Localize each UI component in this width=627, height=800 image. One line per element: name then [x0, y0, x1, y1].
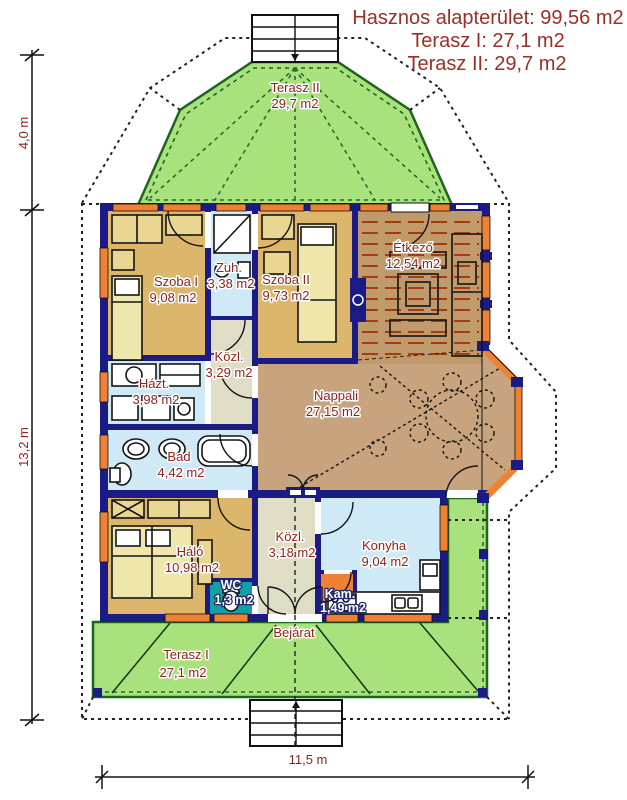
etkezo-area: 12,54 m2: [386, 256, 440, 271]
kozl-felso-area: 3,29 m2: [206, 365, 253, 380]
header-line-1: Hasznos alapterület: 99,56 m2: [352, 7, 623, 29]
szoba2-area: 9,73 m2: [263, 288, 310, 303]
terasz2-area: 29,7 m2: [272, 96, 319, 111]
wc-name: WC: [221, 578, 242, 592]
kozl-also-area: 3,18 m2: [269, 545, 316, 560]
wc-area: 1,3 m2: [215, 593, 254, 607]
header-title: Hasznos alapterület: 99,56 m2 Terasz I: …: [352, 7, 623, 75]
floor-plan-page: Terasz II 29,7 m2 Szoba I 9,08 m2 Zuh. 3…: [0, 0, 627, 800]
etkezo-name: Étkező: [393, 240, 433, 255]
szoba1-area: 9,08 m2: [150, 290, 197, 305]
dim-bottom: 11,5 m: [289, 752, 328, 767]
dim-left-lower: 13,2 m: [16, 427, 31, 467]
terasz2-name: Terasz II: [270, 80, 319, 95]
bejarat-label: Bejárat: [273, 625, 315, 640]
header-line-3: Terasz II: 29,7 m2: [408, 53, 567, 75]
floor-nappali: [258, 364, 482, 490]
szoba1-name: Szoba I: [154, 274, 198, 289]
konyha-area: 9,04 m2: [362, 554, 409, 569]
hazt-name: Házt.: [139, 376, 169, 391]
stairs-bottom: [250, 700, 342, 746]
zuh-name: Zuh.: [216, 260, 242, 275]
kam-name: Kam.: [325, 587, 356, 601]
halo-area: 10,98 m2: [165, 560, 219, 575]
konyha-name: Konyha: [362, 538, 407, 553]
nappali-name: Nappali: [314, 388, 358, 403]
stairs-top: [252, 15, 338, 62]
header-line-2: Terasz I: 27,1 m2: [411, 30, 564, 52]
kam-area: 1,49 m2: [320, 601, 366, 615]
halo-name: Háló: [177, 544, 204, 559]
zuh-area: 3,38 m2: [208, 276, 255, 291]
kozl-also-name: Közl.: [276, 529, 305, 544]
bad-name: Bad: [167, 449, 190, 464]
dim-left-upper: 4,0 m: [16, 117, 31, 150]
terasz1-name: Terasz I: [163, 647, 209, 662]
floor-plan-drawing: Terasz II 29,7 m2 Szoba I 9,08 m2 Zuh. 3…: [0, 0, 627, 800]
hazt-area: 3,98 m2: [133, 392, 180, 407]
kozl-felso-name: Közl.: [215, 349, 244, 364]
bad-area: 4,42 m2: [158, 465, 205, 480]
nappali-area: 27,15 m2: [306, 404, 360, 419]
terasz1-area: 27,1 m2: [160, 665, 207, 680]
szoba2-name: Szoba II: [262, 272, 310, 287]
